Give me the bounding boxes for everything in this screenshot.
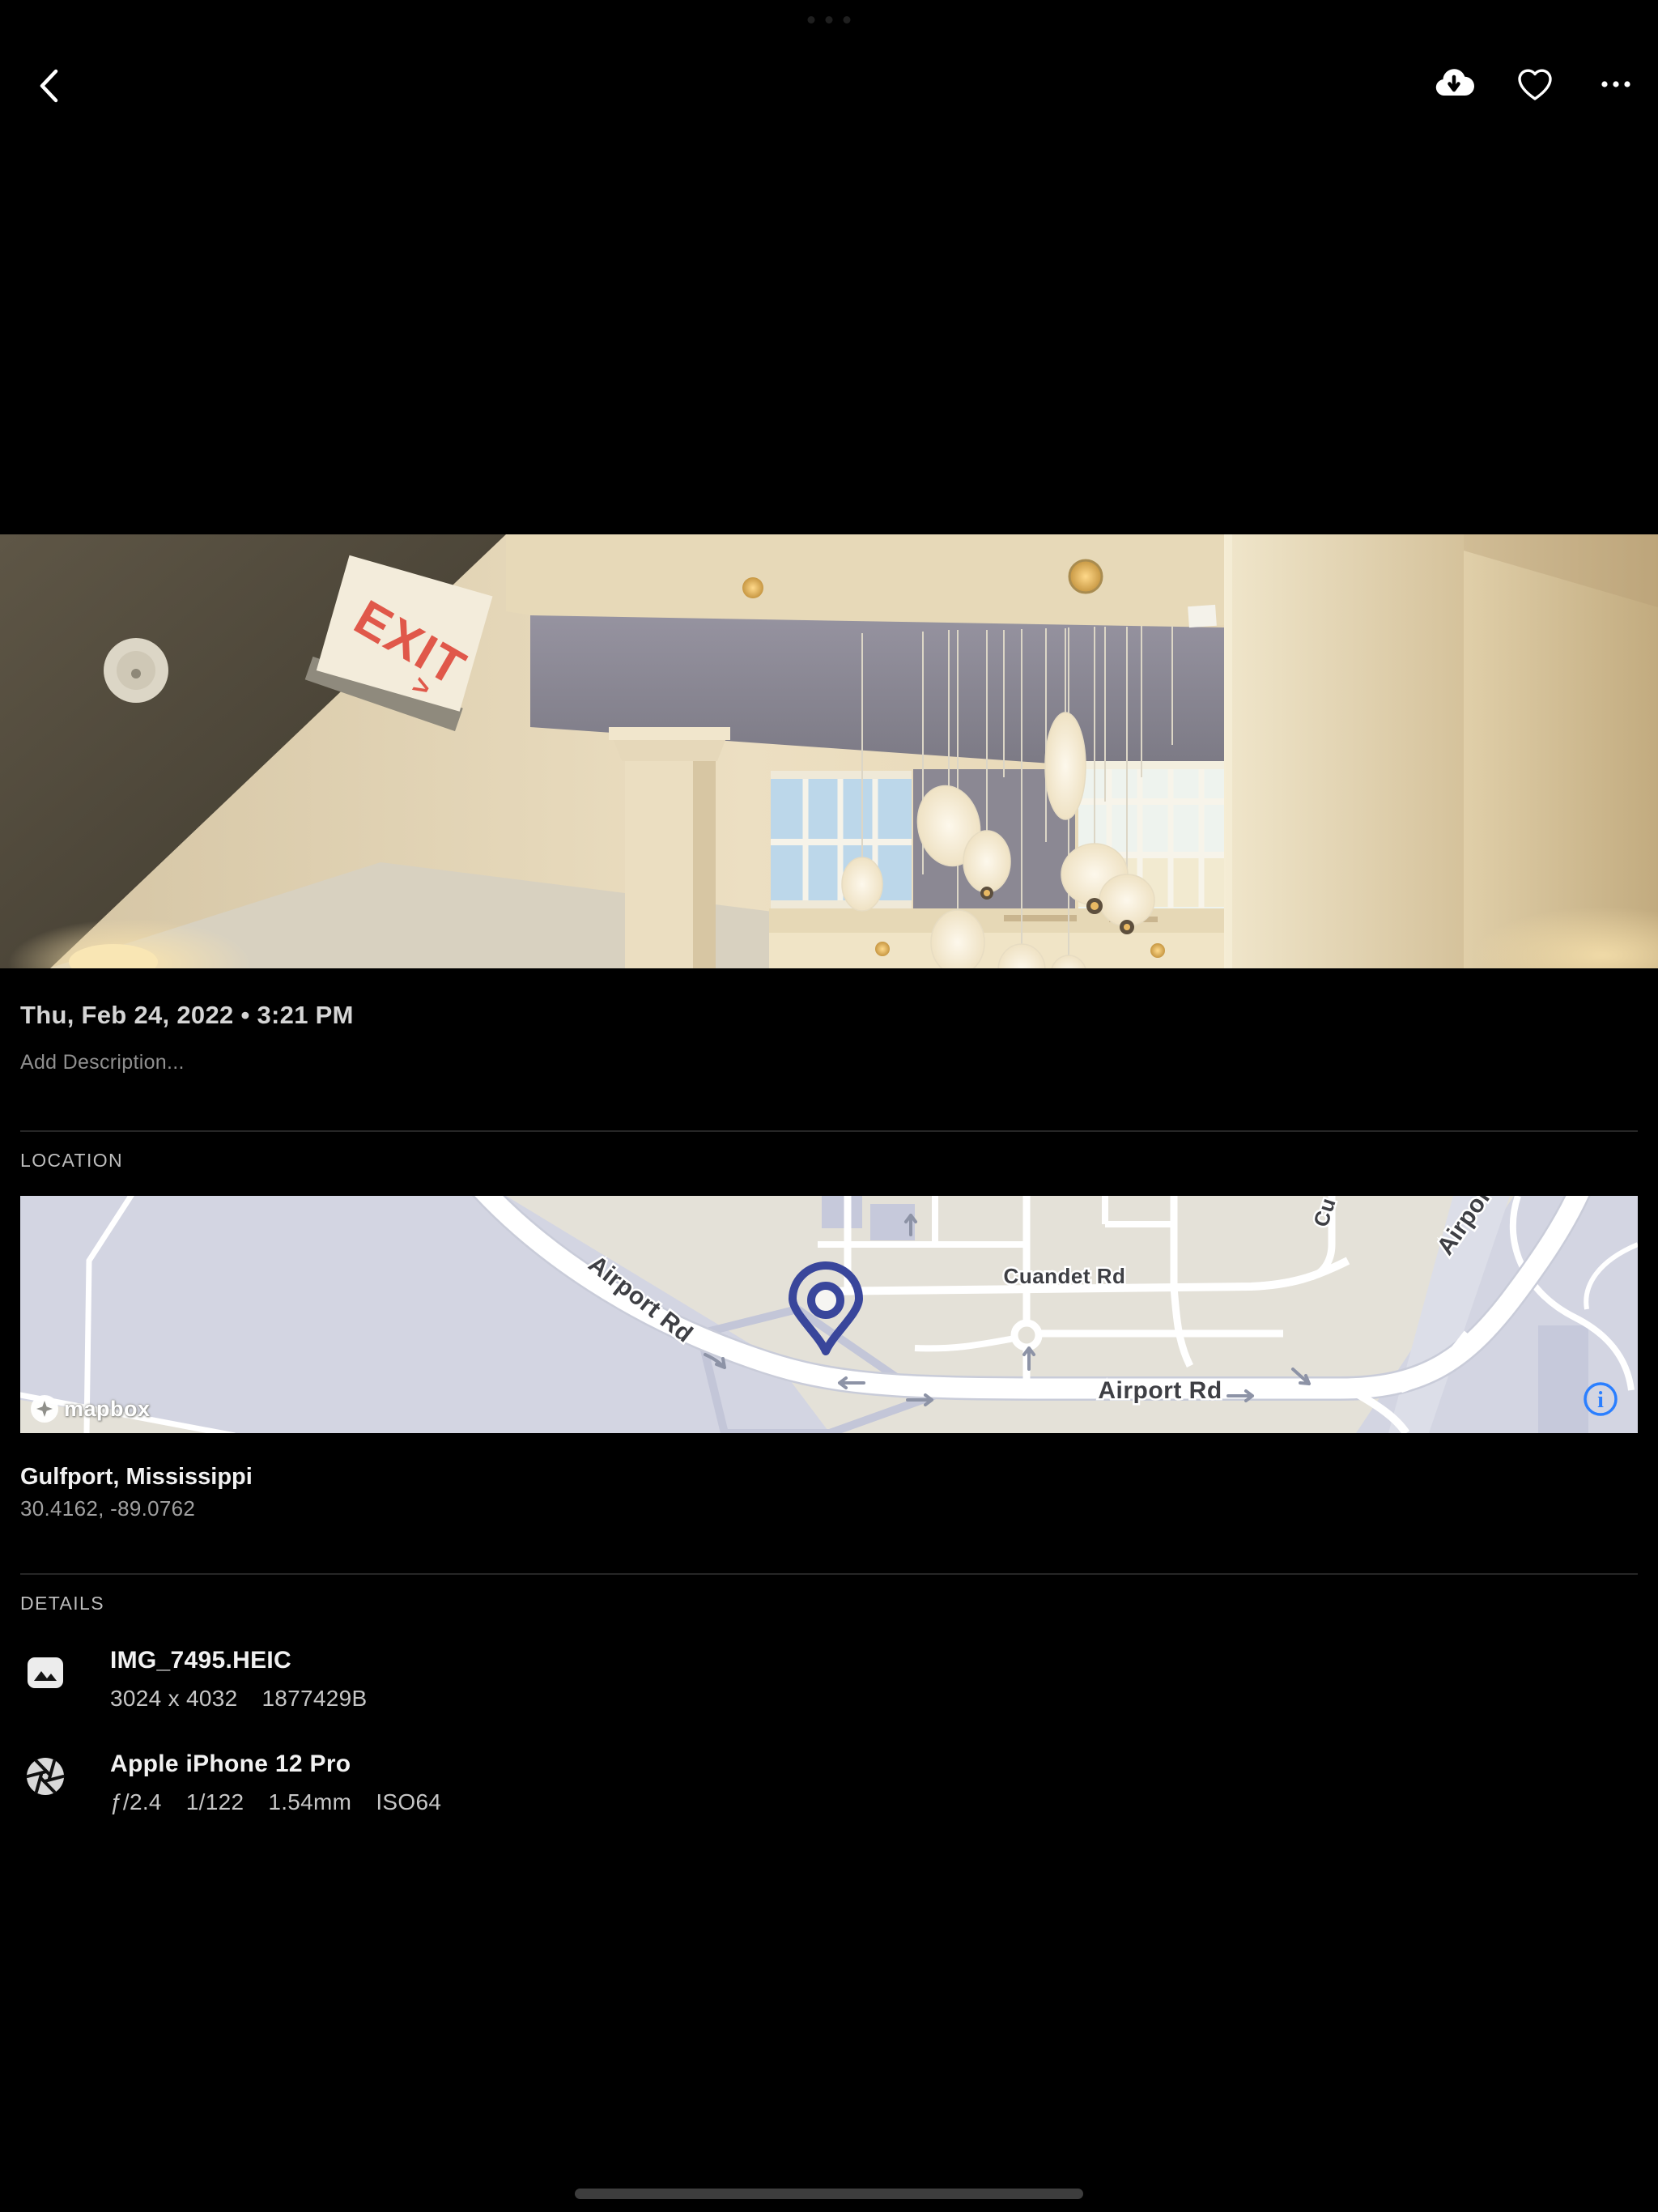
camera-focal-length: 1.54mm: [268, 1789, 351, 1814]
ellipsis-icon: [1595, 63, 1637, 105]
file-size: 1877429B: [261, 1686, 367, 1711]
aperture-icon: [24, 1755, 66, 1797]
image-file-icon: [24, 1652, 66, 1694]
recessed-light: [742, 577, 763, 598]
camera-meta: ƒ/2.41/1221.54mmISO64: [110, 1789, 466, 1815]
back-button[interactable]: [28, 62, 73, 107]
favorite-button[interactable]: [1512, 62, 1558, 107]
file-dimensions: 3024 x 4032: [110, 1686, 237, 1711]
camera-shutter: 1/122: [186, 1789, 244, 1814]
photo-preview[interactable]: EXIT >: [0, 534, 1658, 968]
map-canvas: Airport Rd Cuandet Rd Airport Rd Airport…: [20, 1196, 1638, 1433]
recessed-light: [1069, 560, 1102, 593]
location-coordinates: 30.4162, -89.0762: [20, 1496, 195, 1521]
column-right: [1224, 534, 1464, 968]
mapbox-logo-icon: [30, 1394, 59, 1423]
photo-date: Thu, Feb 24, 2022 • 3:21 PM: [20, 1001, 354, 1030]
location-map[interactable]: Airport Rd Cuandet Rd Airport Rd Airport…: [20, 1196, 1638, 1433]
photo-illustration: EXIT >: [0, 534, 1658, 968]
home-indicator[interactable]: [575, 2189, 1083, 2199]
map-info-button[interactable]: i: [1578, 1376, 1623, 1422]
road-label-airport-horizontal: Airport Rd: [1098, 1377, 1222, 1404]
file-name: IMG_7495.HEIC: [110, 1647, 291, 1674]
divider: [20, 1130, 1638, 1132]
details-section-label: DETAILS: [20, 1593, 104, 1614]
mapbox-wordmark: mapbox: [64, 1397, 151, 1422]
photo-detail-screen: EXIT >: [0, 0, 1658, 2212]
topbar-actions: [1431, 62, 1639, 107]
divider: [20, 1573, 1638, 1575]
info-icon: i: [1578, 1376, 1623, 1422]
location-place: Gulfport, Mississippi: [20, 1464, 253, 1491]
heart-outline-icon: [1514, 63, 1556, 105]
camera-iso: ISO64: [376, 1789, 441, 1814]
download-button[interactable]: [1431, 62, 1477, 107]
more-options-button[interactable]: [1593, 62, 1639, 107]
road-label-cuandet: Cuandet Rd: [1004, 1264, 1126, 1288]
camera-aperture: ƒ/2.4: [110, 1789, 162, 1814]
column-left: [609, 727, 730, 968]
file-meta: 3024 x 40321877429B: [110, 1686, 392, 1712]
smoke-detector: [104, 638, 168, 703]
location-section-label: LOCATION: [20, 1150, 123, 1172]
chevron-left-icon: [29, 63, 71, 105]
mapbox-attribution[interactable]: mapbox: [30, 1394, 151, 1423]
add-description-field[interactable]: Add Description...: [20, 1051, 185, 1074]
roundabout: [1014, 1323, 1039, 1347]
multitask-dots-icon: [808, 16, 851, 23]
svg-text:i: i: [1597, 1388, 1604, 1413]
camera-model: Apple iPhone 12 Pro: [110, 1750, 351, 1778]
clerestory-windows-left: [771, 771, 912, 908]
cloud-download-icon: [1433, 63, 1475, 105]
